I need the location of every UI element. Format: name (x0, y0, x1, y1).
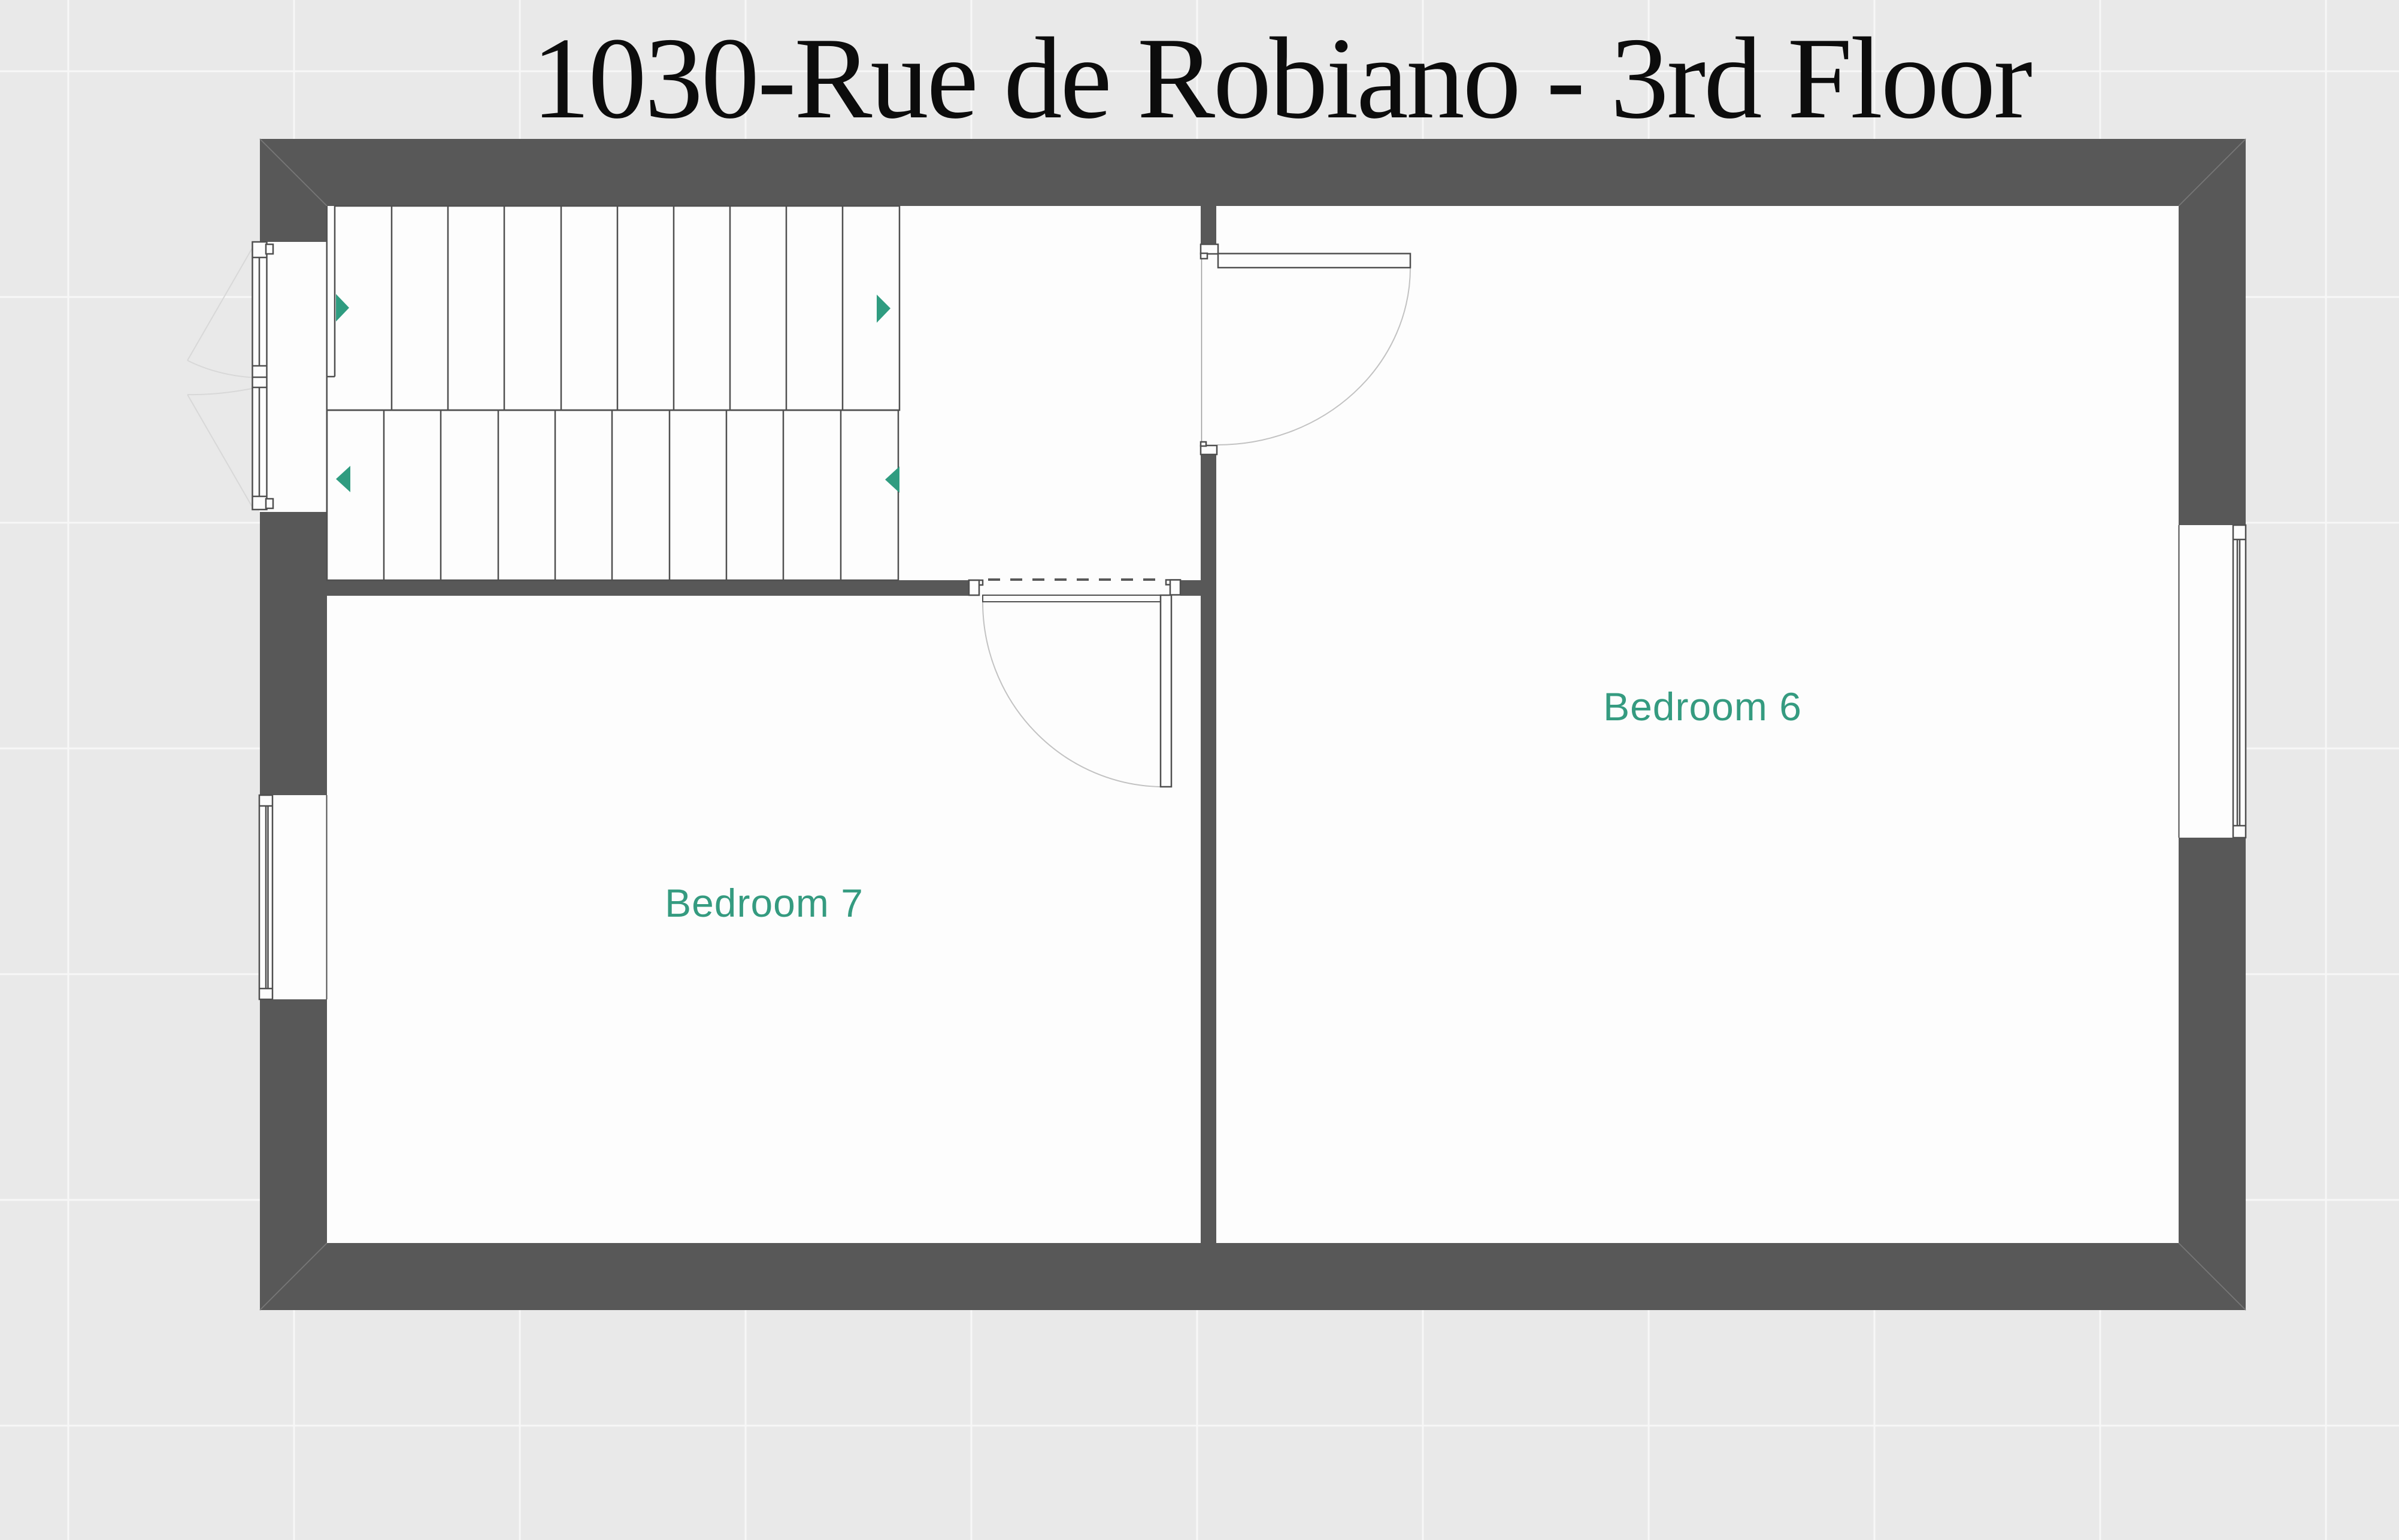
svg-text:Bedroom 7: Bedroom 7 (665, 881, 864, 925)
svg-text:1030-Rue de Robiano - 3rd Floo: 1030-Rue de Robiano - 3rd Floor (532, 14, 2032, 143)
svg-text:Bedroom 6: Bedroom 6 (1603, 684, 1802, 729)
